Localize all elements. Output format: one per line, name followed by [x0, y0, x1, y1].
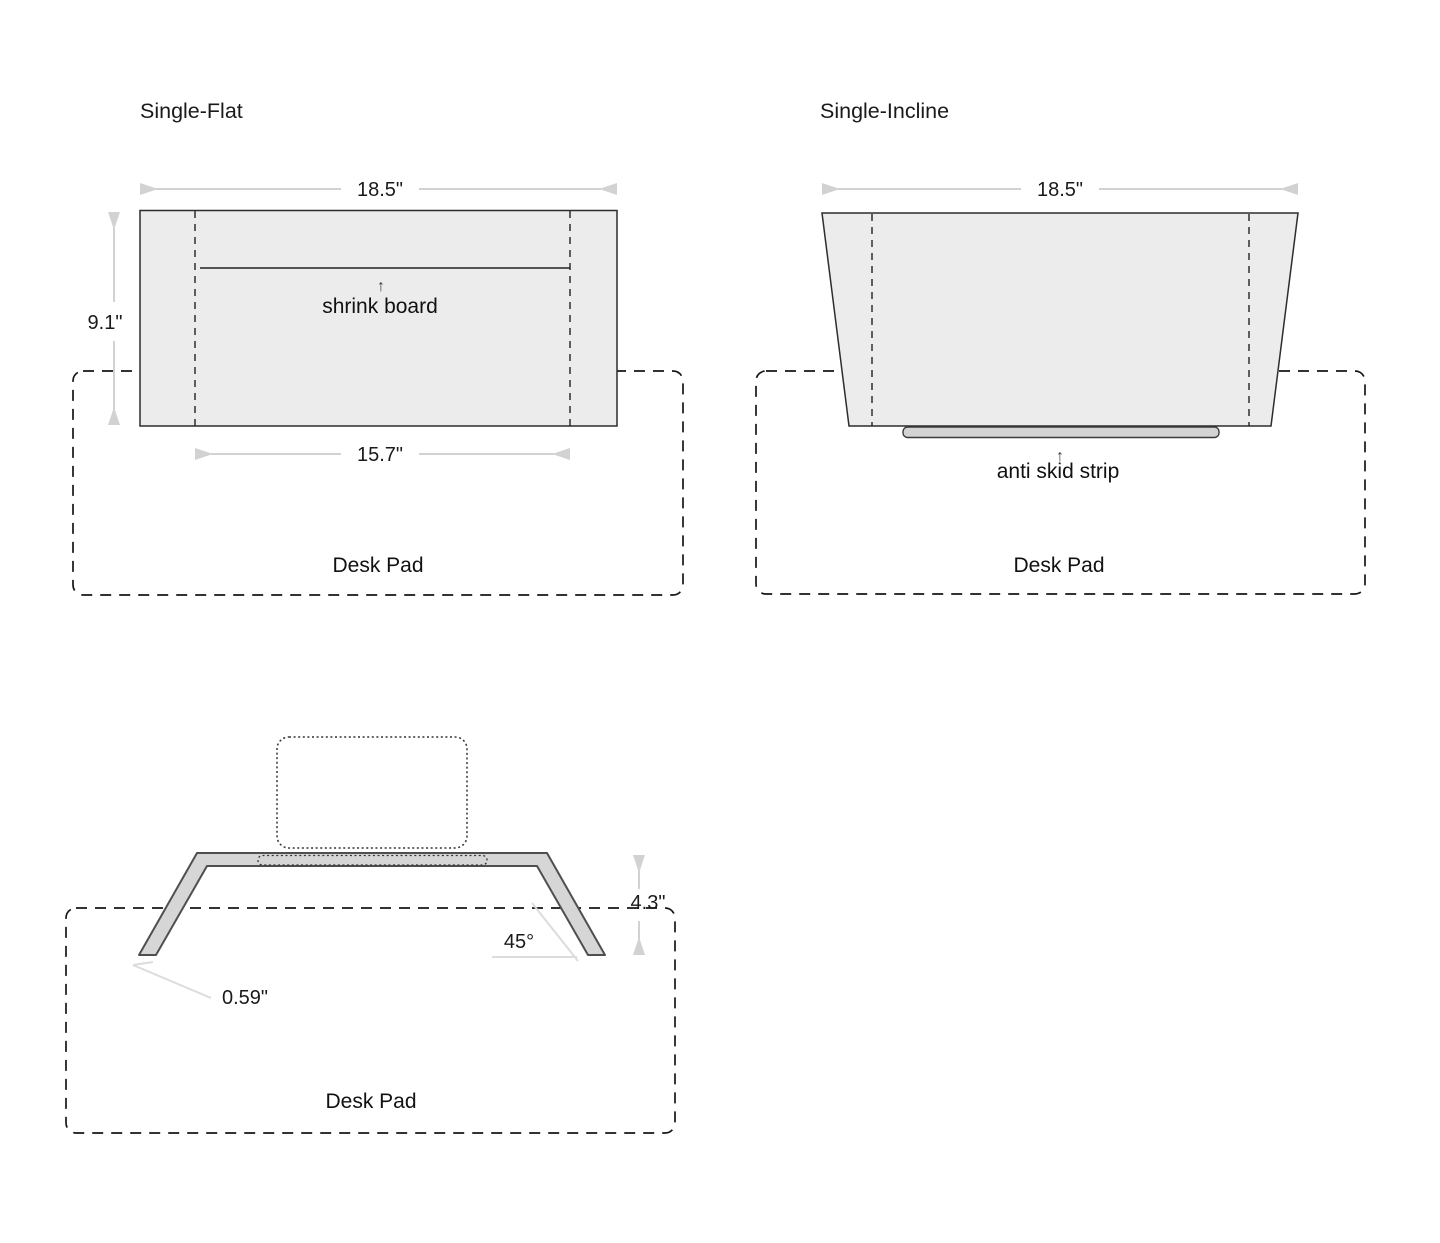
- flat-board-width-value: 15.7": [357, 444, 403, 466]
- dim-arrowhead: [108, 212, 120, 230]
- single-flat-diagram: Single-Flat Desk Pad ↑ shrink board 18.5…: [73, 99, 683, 595]
- dim-arrowhead: [552, 448, 570, 460]
- dim-arrowhead: [1280, 183, 1298, 195]
- single-incline-title: Single-Incline: [820, 99, 949, 123]
- flat-board-width-dimension: 15.7": [195, 444, 570, 466]
- flat-height-value: 9.1": [88, 312, 123, 334]
- single-incline-diagram: Single-Incline Desk Pad ↑ anti skid stri…: [756, 99, 1365, 594]
- dim-arrowhead: [822, 183, 840, 195]
- desk-pad-label: Desk Pad: [332, 554, 423, 577]
- up-arrow-icon: ↑: [377, 278, 385, 295]
- side-height-value: 4.3": [631, 892, 666, 914]
- flat-stand-body: [140, 211, 617, 427]
- side-angle-value: 45°: [504, 931, 534, 953]
- side-view-diagram: Desk Pad 4.3" 45° 0.59": [66, 737, 675, 1133]
- side-height-dimension: 4.3": [631, 855, 666, 955]
- flat-height-dimension: 9.1": [88, 212, 123, 425]
- incline-width-dimension: 18.5": [822, 179, 1298, 201]
- flat-width-value: 18.5": [357, 179, 403, 201]
- dim-arrowhead: [140, 183, 158, 195]
- dimension-diagram-canvas: Single-Flat Desk Pad ↑ shrink board 18.5…: [0, 0, 1440, 1243]
- desk-pad-label: Desk Pad: [1013, 554, 1104, 577]
- device-outline: [277, 737, 467, 848]
- dim-arrowhead: [108, 407, 120, 425]
- incline-width-value: 18.5": [1037, 179, 1083, 201]
- dim-arrowhead: [633, 937, 645, 955]
- stand-profile: [139, 853, 605, 955]
- dim-arrowhead: [633, 855, 645, 873]
- incline-stand-body: [822, 213, 1298, 426]
- anti-skid-strip-label: anti skid strip: [997, 460, 1120, 483]
- side-thickness-value: 0.59": [222, 987, 268, 1009]
- anti-skid-strip: [903, 427, 1219, 438]
- dim-arrowhead: [195, 448, 213, 460]
- desk-pad-label: Desk Pad: [325, 1090, 416, 1113]
- dim-arrowhead: [599, 183, 617, 195]
- leader-line: [133, 965, 211, 998]
- single-flat-title: Single-Flat: [140, 99, 243, 123]
- shrink-board-label: shrink board: [322, 295, 438, 318]
- leader-arrowhead: [133, 962, 153, 965]
- flat-width-dimension: 18.5": [140, 179, 617, 201]
- dimension-diagram-page: Single-Flat Desk Pad ↑ shrink board 18.5…: [0, 0, 1440, 1243]
- side-thickness-dimension: 0.59": [133, 962, 268, 1009]
